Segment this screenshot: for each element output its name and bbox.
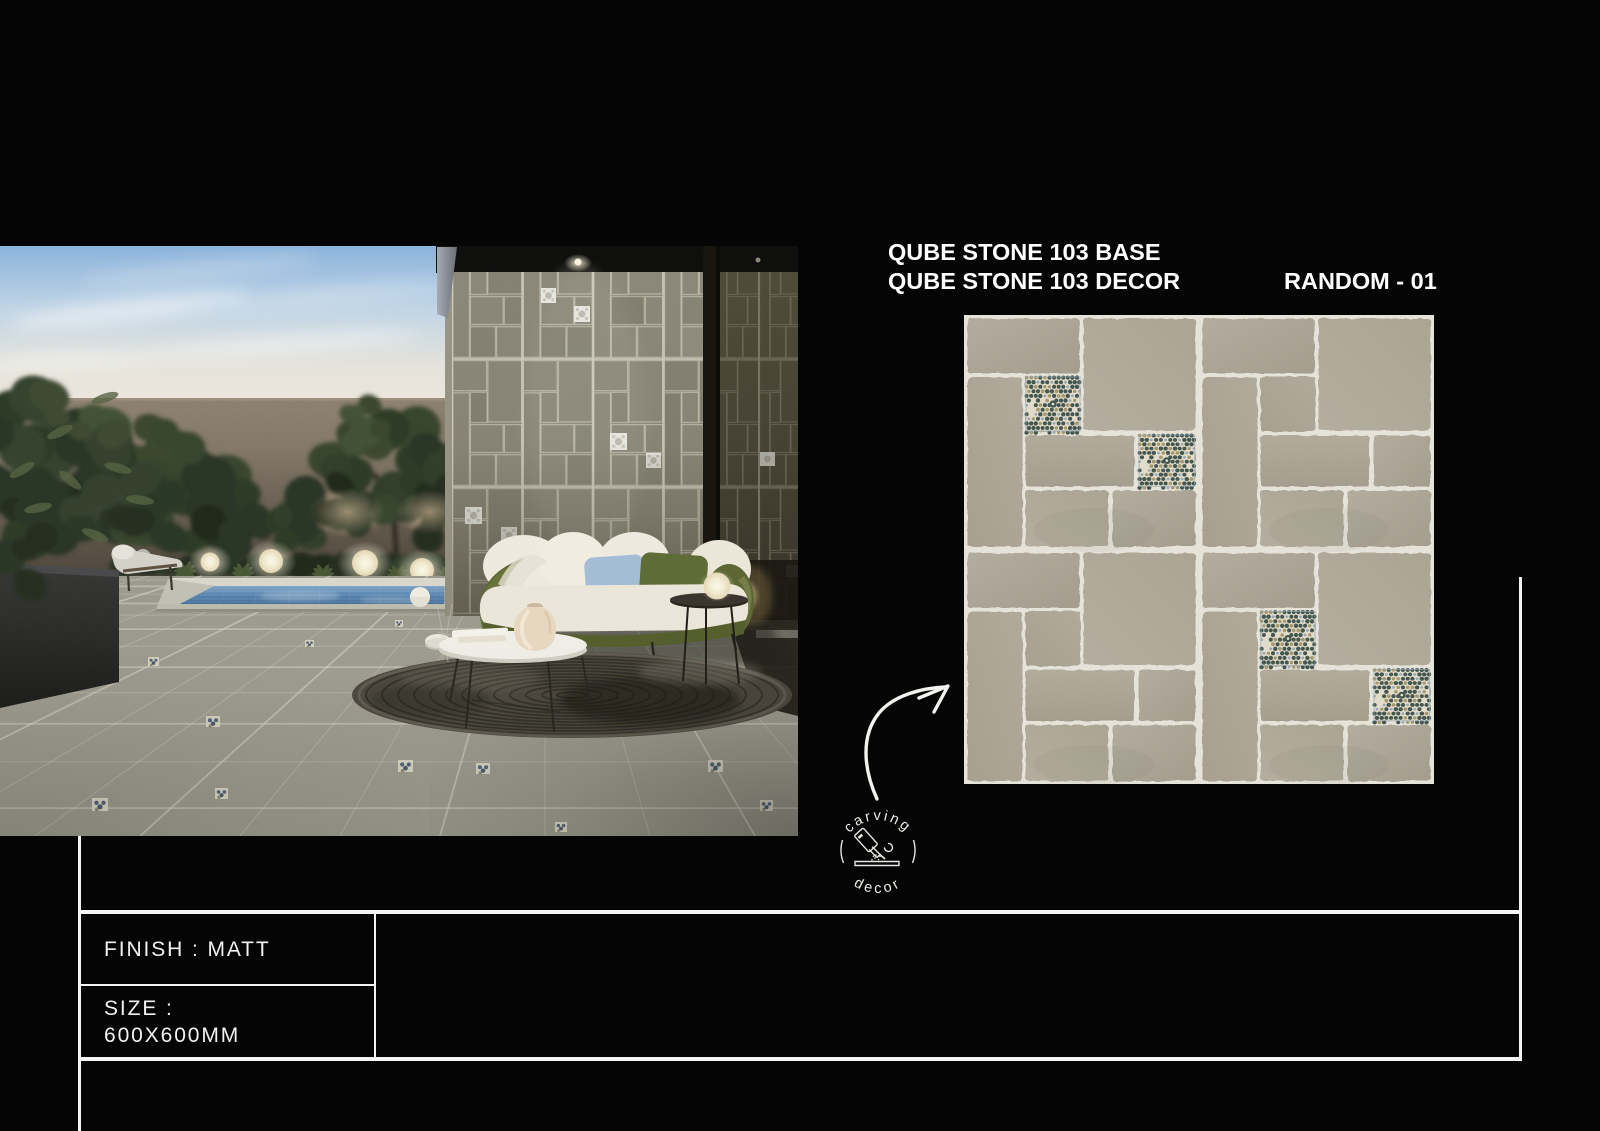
svg-text:decor: decor — [851, 875, 904, 897]
svg-text:carving: carving — [841, 808, 915, 836]
